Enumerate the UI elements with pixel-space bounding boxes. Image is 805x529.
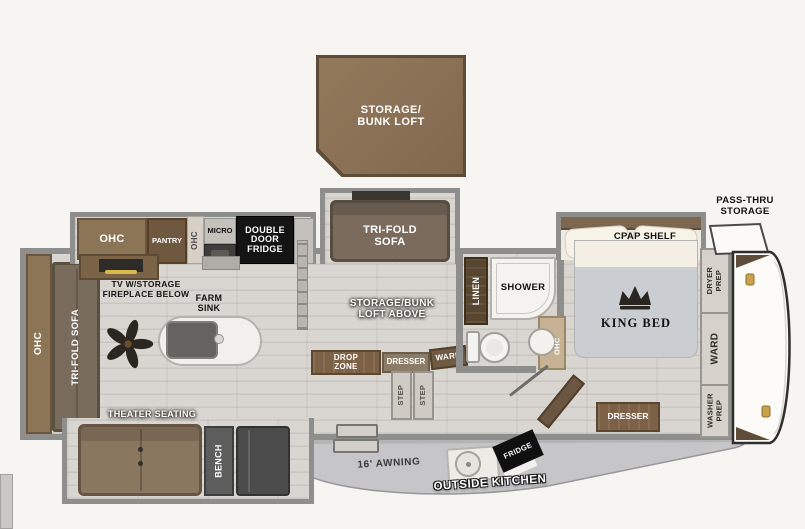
- micro-label: MICRO: [208, 227, 233, 235]
- shower-stall: SHOWER: [490, 257, 556, 320]
- bath-ohc: OHC: [551, 326, 565, 366]
- mid-sofa-label: TRI-FOLD SOFA: [363, 224, 417, 249]
- bath-ohc-label: OHC: [554, 337, 562, 355]
- bunk-loft-label: STORAGE/ BUNK LOFT: [357, 104, 424, 129]
- cooktop-counter: [202, 256, 240, 270]
- cupholder-1: [138, 447, 143, 452]
- fireplace-glow: [105, 270, 137, 274]
- toilet-bowl: [479, 332, 510, 363]
- outside-fridge-label: FRIDGE: [503, 441, 534, 461]
- cap-handle-top: [746, 274, 754, 285]
- rear-ohc-label: OHC: [33, 332, 44, 355]
- loft-ladder: [297, 240, 308, 330]
- step-2-label: STEP: [419, 385, 427, 406]
- bunk-loft-box: STORAGE/ BUNK LOFT: [316, 55, 466, 177]
- front-cap: [700, 210, 805, 460]
- linen-cabinet: LINEN: [464, 257, 488, 325]
- farm-sink-label: FARM SINK: [175, 293, 243, 313]
- seat-divider: [140, 429, 142, 491]
- dresser-mid-label: DRESSER: [387, 358, 426, 367]
- stabilizer-jack: [0, 474, 13, 529]
- step-1-label: STEP: [397, 385, 405, 406]
- bench-bed: [236, 426, 290, 496]
- sofa-back-cushion: [333, 203, 447, 215]
- step-2: STEP: [413, 371, 434, 420]
- floorplan-canvas: { "colors": { "wall_gray": "#8e8e8c", "c…: [0, 0, 805, 529]
- cupholder-2: [138, 461, 143, 466]
- entry-step-upper: [336, 424, 378, 438]
- double-door-fridge: DOUBLE DOOR FRIDGE: [236, 216, 294, 264]
- dresser-mid-cabinet: DRESSER: [382, 352, 430, 373]
- bench-seat: BENCH: [204, 426, 234, 496]
- drop-zone-label: DROP ZONE: [334, 354, 358, 372]
- loft-above-label: STORAGE/BUNK LOFT ABOVE: [330, 298, 454, 320]
- bath-bottom-wall: [456, 366, 536, 373]
- ceiling-fan-icon: [100, 316, 156, 372]
- king-bed-label: KING BED: [586, 316, 686, 330]
- drop-zone-cabinet: DROP ZONE: [311, 350, 381, 375]
- crown-icon: [615, 284, 655, 312]
- kitchen-ohc-small-label: OHC: [191, 231, 200, 250]
- farm-sink-basin: [166, 321, 218, 359]
- faucet-icon: [214, 334, 224, 344]
- pass-thru-door: [710, 224, 768, 254]
- bath-left-wall: [456, 250, 463, 373]
- micro-counter: MICRO: [204, 218, 236, 244]
- mid-trifold-sofa: TRI-FOLD SOFA: [330, 200, 450, 262]
- dresser-bedroom: DRESSER: [596, 402, 660, 432]
- dresser-bedroom-label: DRESSER: [607, 412, 648, 422]
- cap-handle-bottom: [762, 406, 770, 417]
- slide-tv-icon: [352, 191, 410, 200]
- linen-label: LINEN: [471, 277, 481, 306]
- pantry-label: PANTRY: [152, 237, 182, 245]
- entry-step-lower: [333, 439, 379, 453]
- bunk-loft-inner: STORAGE/ BUNK LOFT: [319, 58, 463, 174]
- bench-label: BENCH: [214, 444, 224, 478]
- rear-ohc-cabinet: OHC: [26, 254, 52, 434]
- theater-seating-label: THEATER SEATING: [90, 409, 214, 419]
- step-1: STEP: [391, 371, 412, 420]
- shower-pan-line: [496, 263, 550, 314]
- tv-fireplace-cabinet: [79, 254, 159, 280]
- double-door-fridge-label: DOUBLE DOOR FRIDGE: [245, 226, 285, 254]
- outside-burner: [455, 451, 481, 477]
- theater-seat: [78, 424, 202, 496]
- rear-sofa-label: TRI-FOLD SOFA: [71, 309, 82, 386]
- toilet-tank: [466, 331, 480, 363]
- bath-right-wall: [557, 250, 564, 326]
- kitchen-ohc-label: OHC: [99, 233, 124, 245]
